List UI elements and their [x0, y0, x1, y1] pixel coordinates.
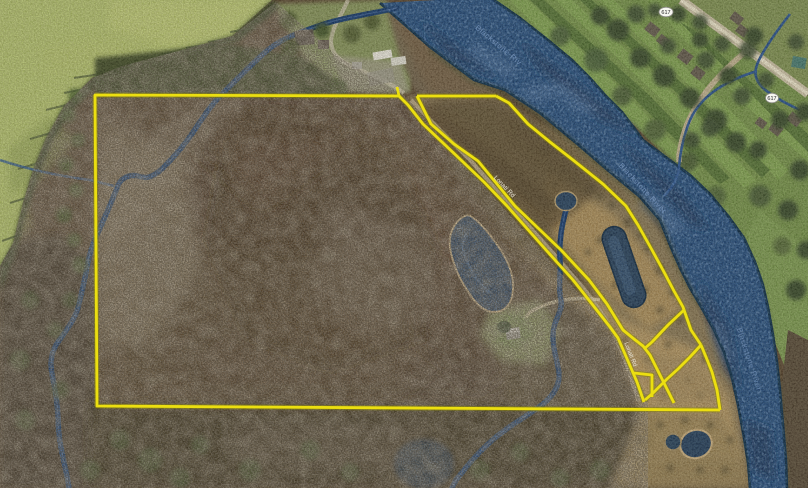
svg-text:617: 617 — [767, 96, 776, 102]
svg-text:617: 617 — [661, 10, 670, 16]
